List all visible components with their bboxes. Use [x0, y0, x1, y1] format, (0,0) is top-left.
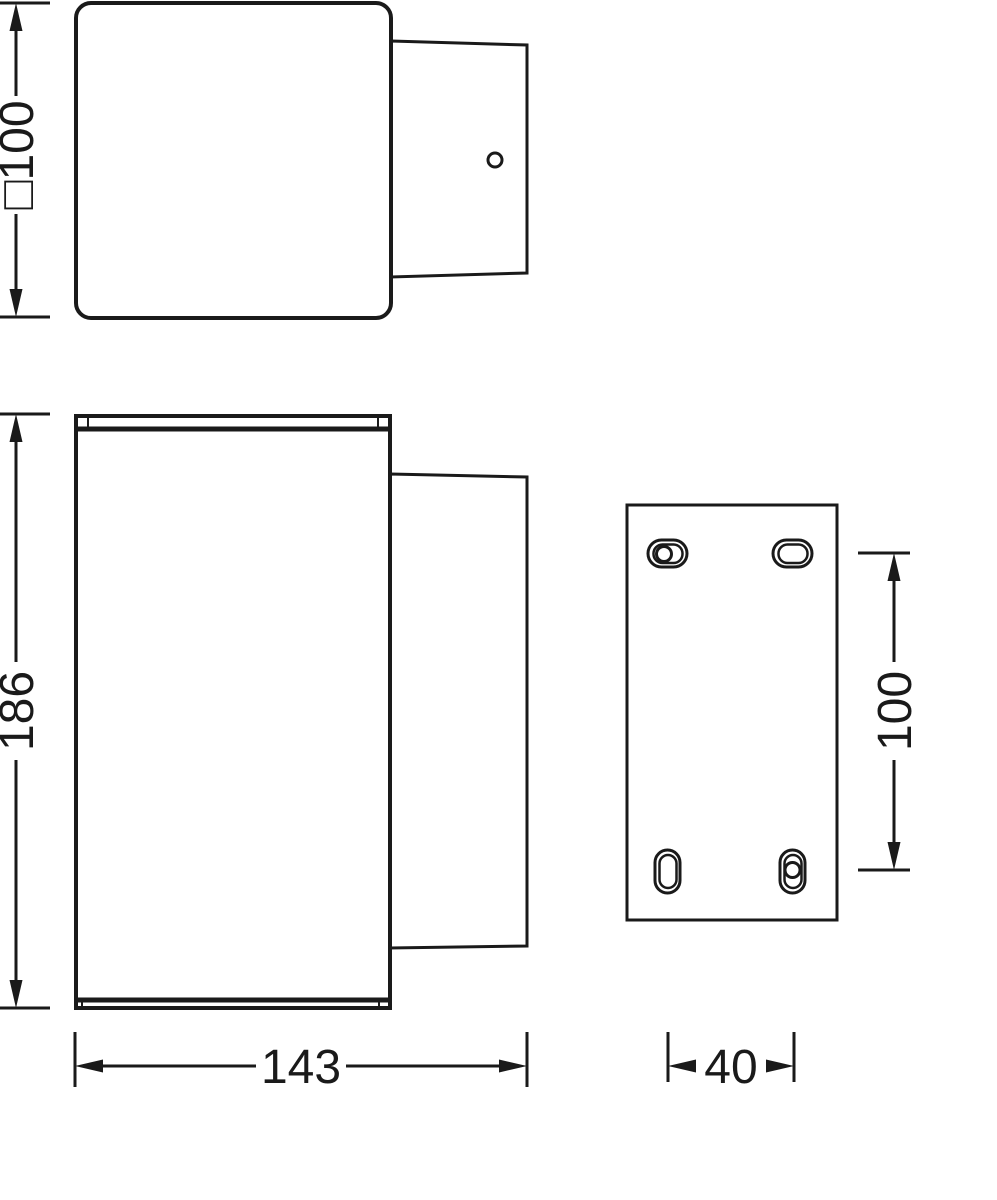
dim-front-view-height: 186 — [0, 414, 50, 1008]
mounting-plate-view — [627, 505, 837, 920]
dim-label-40: 40 — [704, 1041, 757, 1094]
arrow-down-icon — [10, 289, 23, 317]
top-view — [76, 3, 527, 318]
dim-plate-hole-spacing: 100 — [858, 553, 922, 870]
top-view-body — [76, 3, 391, 318]
arrow-left-icon — [75, 1060, 103, 1073]
arrow-left-icon — [668, 1060, 696, 1073]
dimension-drawing: □100 186 143 — [0, 0, 997, 1200]
dim-top-view-width: □100 — [0, 3, 50, 317]
dim-label-square-100: □100 — [0, 100, 44, 209]
arrow-up-icon — [888, 553, 901, 581]
front-view — [76, 416, 527, 1008]
top-view-bracket — [391, 41, 527, 277]
arrow-up-icon — [10, 3, 23, 31]
arrow-down-icon — [10, 980, 23, 1008]
dim-label-186: 186 — [0, 671, 44, 751]
front-view-body — [76, 416, 390, 1008]
arrow-down-icon — [888, 842, 901, 870]
arrow-up-icon — [10, 414, 23, 442]
arrow-right-icon — [766, 1060, 794, 1073]
dim-plate-width: 40 — [668, 1032, 794, 1094]
dim-label-100: 100 — [869, 671, 922, 751]
arrow-right-icon — [499, 1060, 527, 1073]
dim-front-view-width: 143 — [75, 1032, 527, 1094]
dim-label-143: 143 — [261, 1041, 341, 1094]
front-view-bracket — [390, 474, 527, 948]
